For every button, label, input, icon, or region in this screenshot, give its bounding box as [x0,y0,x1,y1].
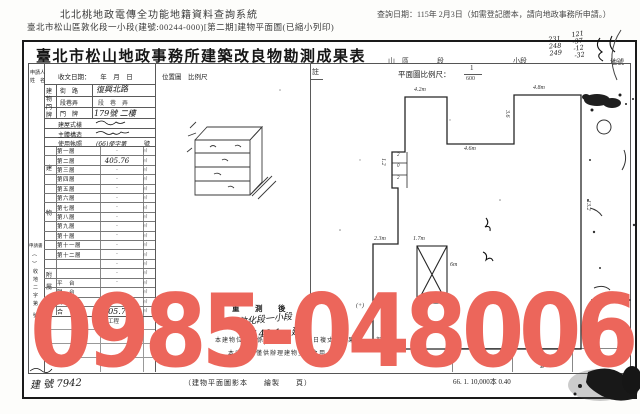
plan-scale-denominator: 600 [466,76,475,82]
header-query-date: 查詢日期：115年 2月3日（如需登記謄本，請向地政事務所申請。） [377,9,611,20]
floor-value: - [99,252,135,257]
unit-label: ㎡ [135,223,155,229]
floor-value: - [99,215,135,220]
table-row: -㎡ [44,259,155,268]
plan-scale-numerator: 1 [470,64,474,72]
floor-value: - [99,243,135,248]
table-row: 第九層-㎡ [44,221,155,230]
floor-value: - [99,168,135,173]
handwritten-lot-column-1: 231 248 249 [548,35,562,57]
application-doc-label: 申請書 [29,243,43,249]
unit-label: ㎡ [135,186,155,192]
floor-label: 第七層 [44,204,99,212]
handwritten-lot-column-2: 121 -37 -12 -32 [571,30,587,59]
plan-scale-label: 平面圖比例尺： [398,69,451,80]
table-row: 第六層-㎡ [44,193,155,202]
unit-label: ㎡ [135,158,155,164]
floor-value: - [99,262,135,267]
dim-right-edge: 13.2 [585,200,591,211]
table-line [44,96,155,97]
dim-left-upper: 1.2 [380,158,386,166]
address-group-char: 牌 [46,110,52,119]
floor-value: - [99,233,135,238]
unit-label: ㎡ [135,176,155,182]
header-system-title: 北北桃地政電傳全功能地籍資料查詢系統 [60,6,258,21]
floor-label: 第十二層 [44,251,99,259]
note-underline [311,79,323,80]
applicant-name-label: 姓 名 [30,77,45,84]
floor-label: 第十一層 [44,241,99,249]
table-line [56,84,57,118]
cell-mark: 2 [397,176,400,181]
street-label: 街 路 [60,86,78,95]
floor-value: - [99,177,135,182]
table-row: 第五層-㎡ [44,184,155,193]
style-label: 建屋式樣 [58,120,82,129]
dim-step: 4.6m [464,146,476,152]
door-label: 門 牌 [60,109,78,118]
floor-value: - [99,186,135,191]
unit-label: ㎡ [135,233,155,239]
dim-left-b: 1.7m [413,236,425,242]
floor-label: 第一層 [44,147,99,155]
table-row: 第一層-㎡ [44,147,155,155]
unit-label: ㎡ [135,195,155,201]
floor-value: - [99,149,135,154]
floor-label: 第八層 [44,213,99,221]
floor-value: - [99,205,135,210]
scale-fraction-bar [464,74,482,75]
handwritten-lot: 249 [549,49,562,57]
dim-top-left: 4.2m [414,87,426,93]
unit-label: ㎡ [135,252,155,258]
applicant-label: 申請人 [30,69,45,76]
header-document-line: 臺北市松山區敦化段一小段(建號:00244-000)[第二期]建物平面圖(已縮小… [27,21,334,33]
floor-label: 第十層 [44,232,99,240]
floor-value: - [99,224,135,229]
dim-shaft: 6m [450,262,457,268]
plan-divider-line [310,63,311,306]
floor-label: 第五層 [44,185,99,193]
floor-value: - [99,196,135,201]
table-row: 第七層-㎡ [44,202,155,211]
floor-label: 第四層 [44,175,99,183]
floor-label: 第二層 [44,157,99,165]
note-label: 註 [312,67,319,77]
dim-top-right: 4.8m [533,85,545,91]
received-date-row: 收文日期： 年 月 日 [58,71,133,81]
door-value: 179號 二樓 [94,108,136,119]
watermark-phone-number: 0985-048006 [30,282,633,383]
unit-label: ㎡ [135,242,155,248]
dim-left-a: 2.3m [374,236,386,242]
unit-label: ㎡ [135,167,155,173]
street-value: 復興北路 [96,83,128,95]
table-row: 第十二層-㎡ [44,249,155,258]
location-scale-label: 位置圖 比例尺 [162,71,208,81]
lane-label: 段巷弄 [60,98,78,107]
structure-label: 主體構造 [58,130,82,139]
table-row: 第三層-㎡ [44,165,155,174]
table-line [92,84,93,118]
floor-label: 第六層 [44,194,99,202]
unit-label: ㎡ [135,261,155,267]
floor-value: 405.76 [99,157,135,165]
cell-mark: 0 [397,164,400,169]
unit-label: ㎡ [135,148,155,154]
table-row: 第二層405.76㎡ [44,155,155,164]
unit-label: ㎡ [135,205,155,211]
unit-label: ㎡ [135,214,155,220]
lane-value: 段 巷 弄 [98,98,128,107]
floor-label: 第九層 [44,222,99,230]
table-row: 第十層-㎡ [44,231,155,240]
table-row: 第八層-㎡ [44,212,155,221]
cell-mark: 2 [397,153,400,158]
dim-notch: 3.6 [504,110,510,118]
floor-label: 第三層 [44,166,99,174]
table-row: 第十一層-㎡ [44,240,155,249]
scanned-document-page: 北北桃地政電傳全功能地籍資料查詢系統 查詢日期：115年 2月3日（如需登記謄本… [0,0,640,414]
application-doc-paren: （ ） [30,251,37,266]
table-row: 第四層-㎡ [44,174,155,183]
